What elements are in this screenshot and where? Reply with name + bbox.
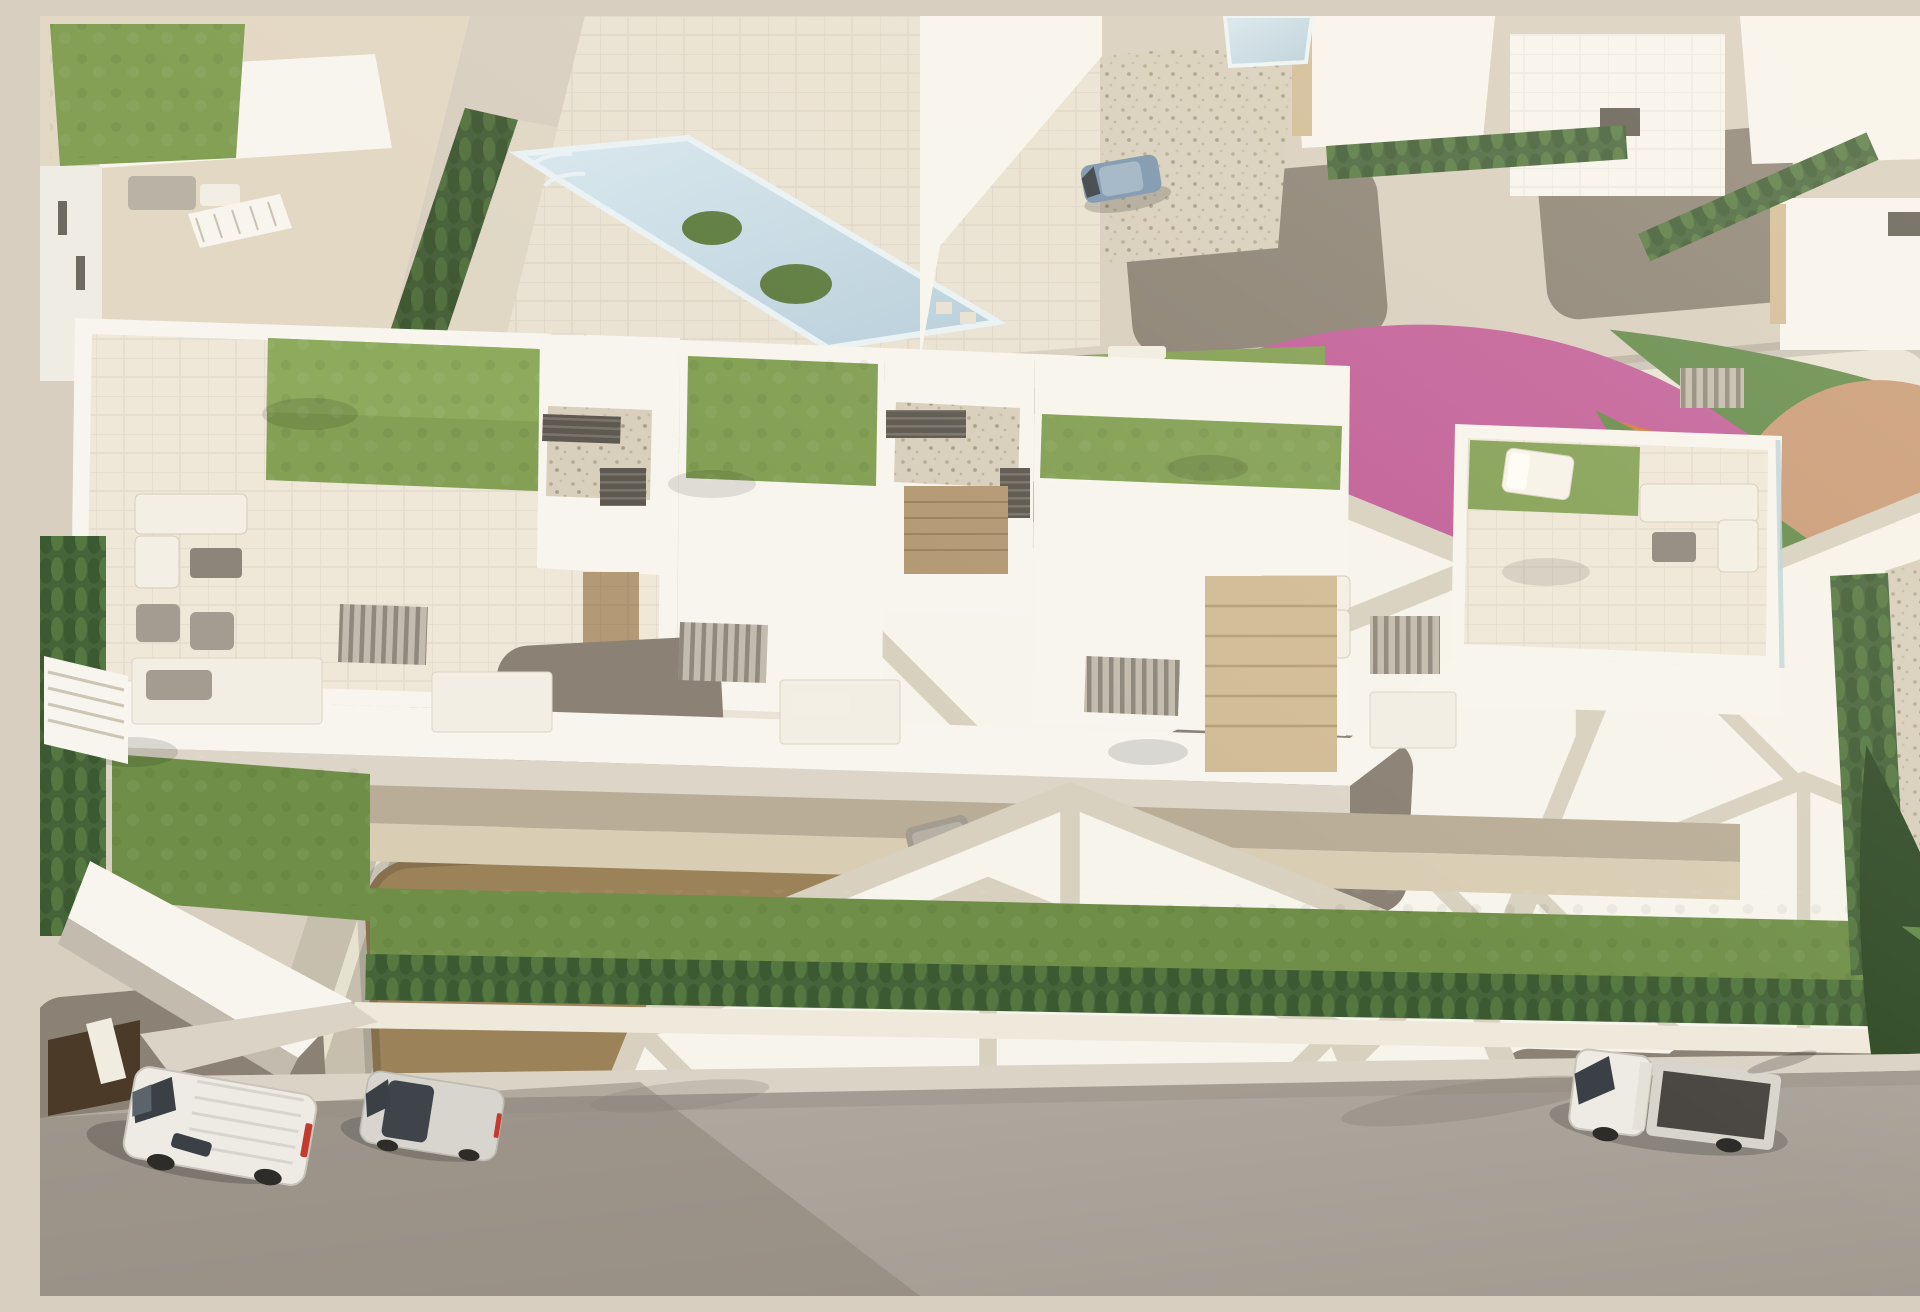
sunlight-overlay	[40, 16, 1920, 1296]
aerial-render	[40, 16, 1920, 1296]
render-canvas	[40, 16, 1920, 1296]
